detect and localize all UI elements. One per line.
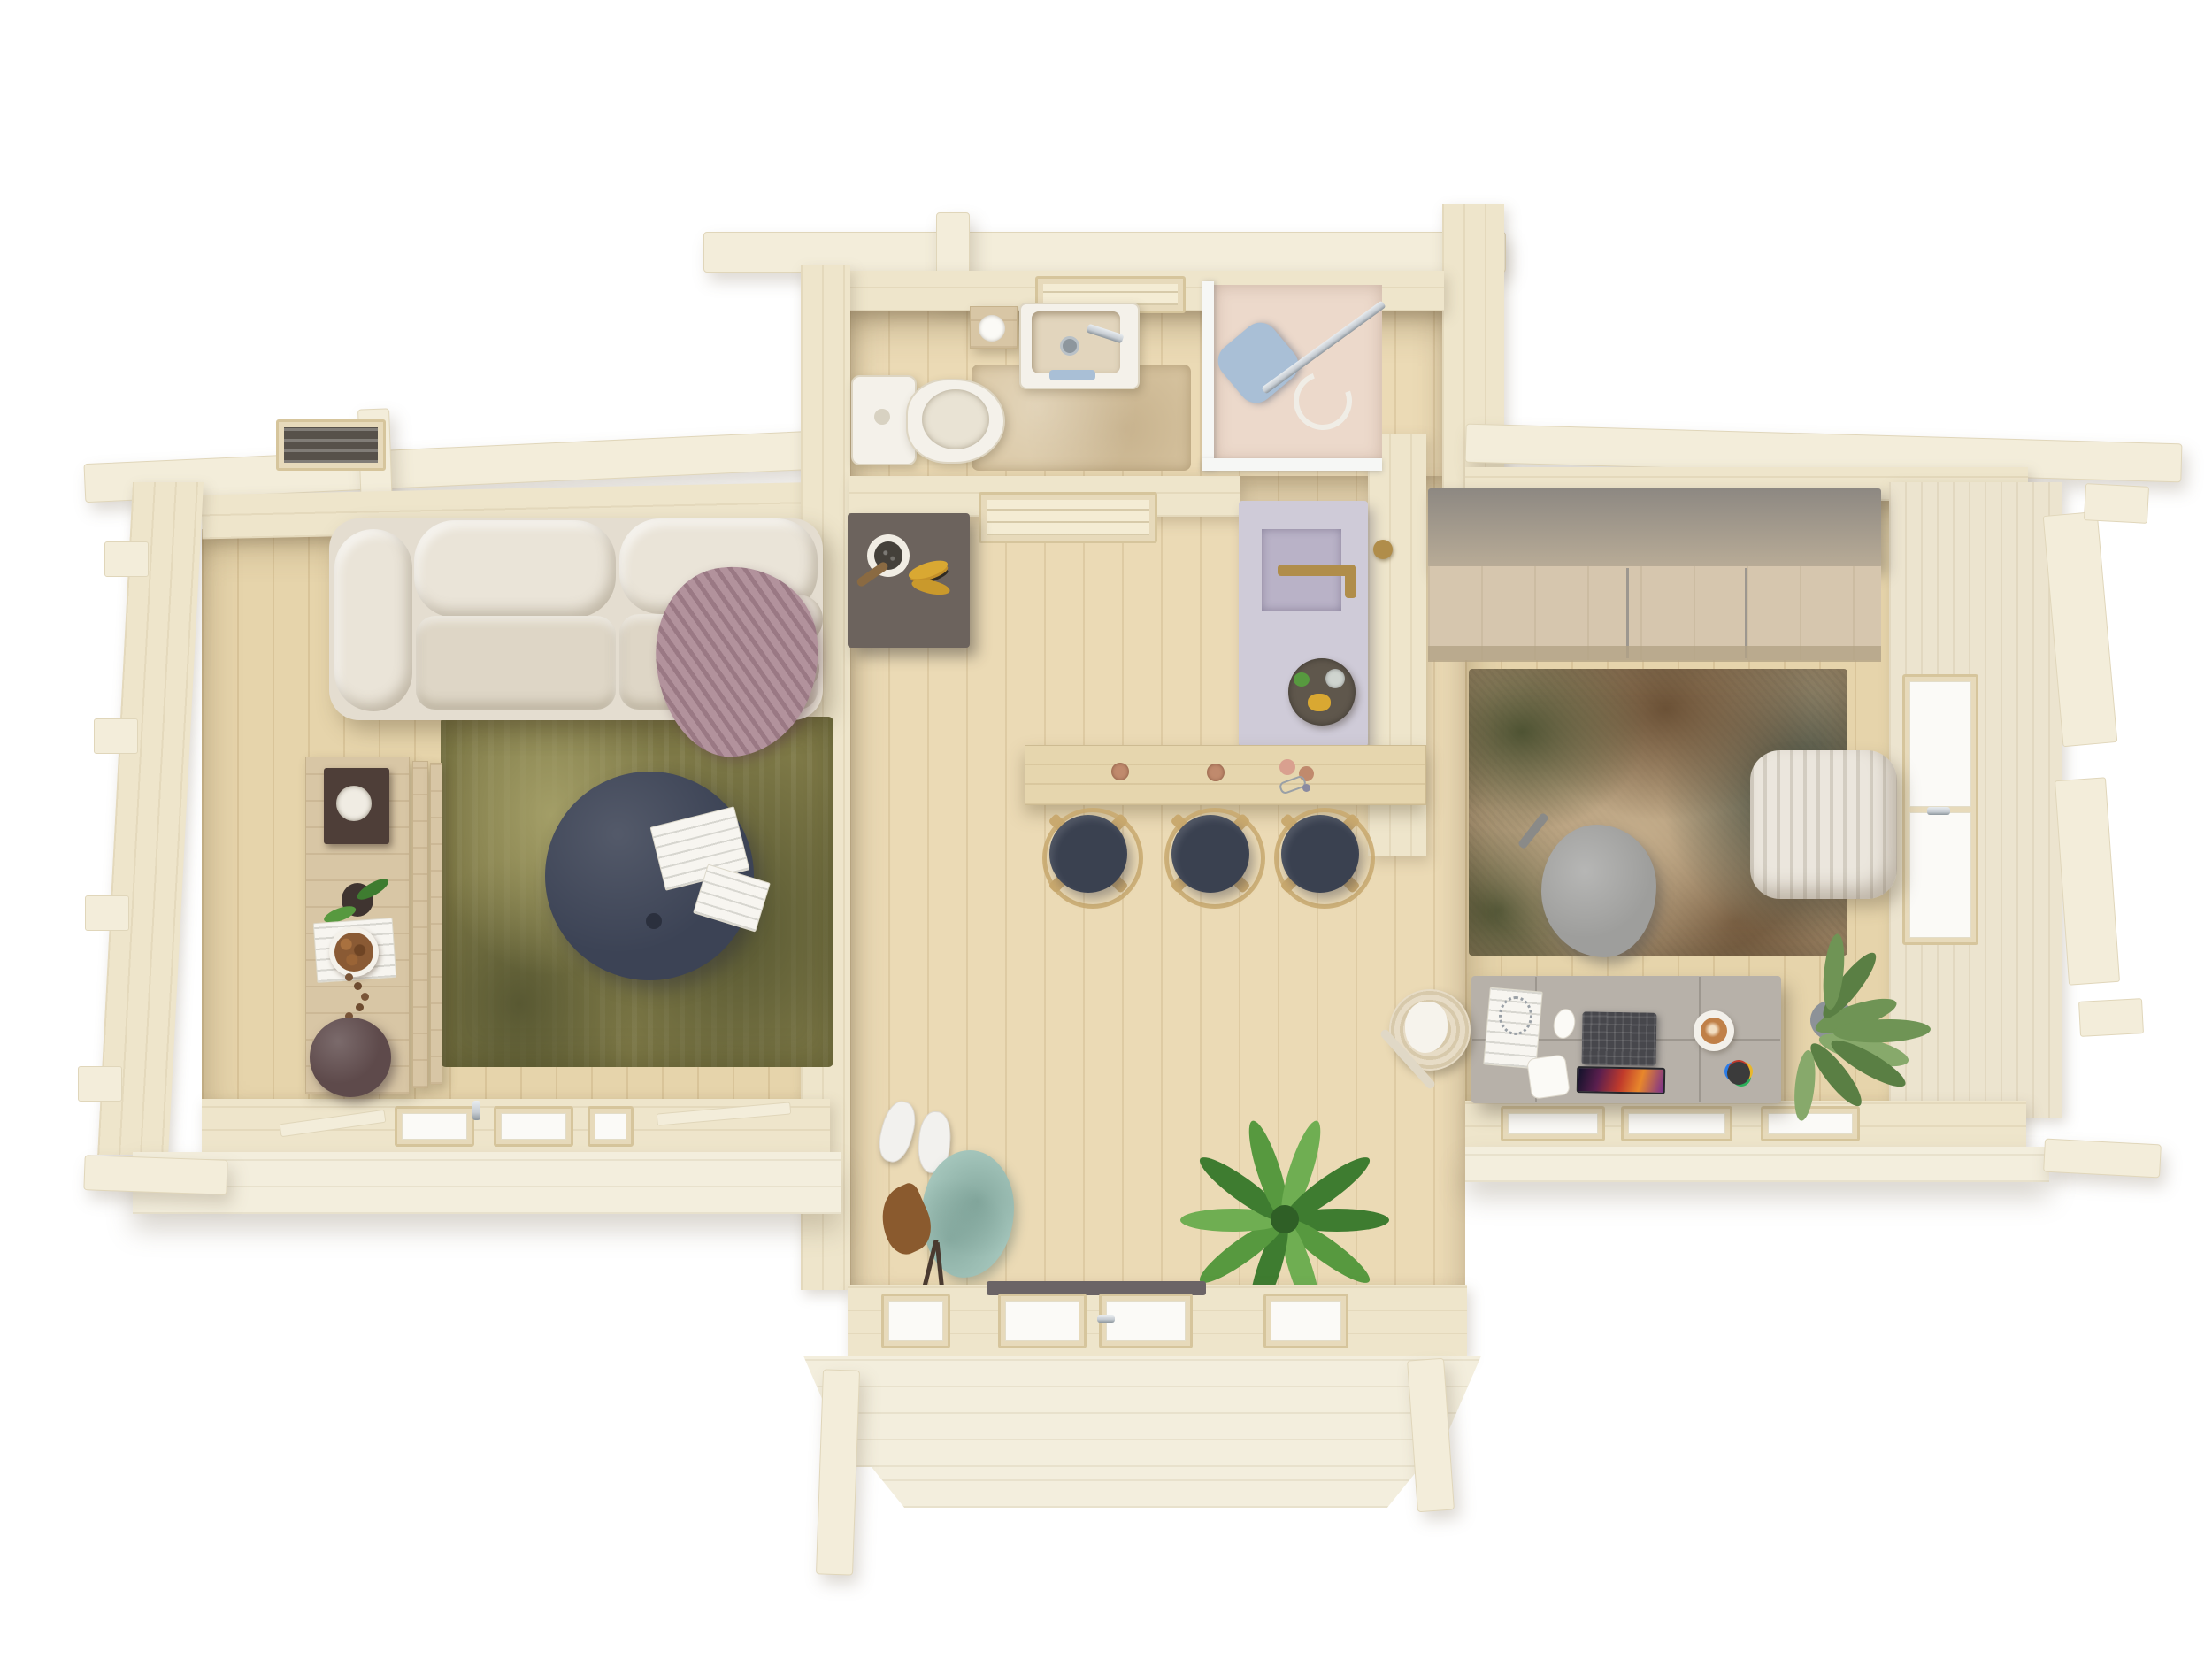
- front-window: [881, 1294, 950, 1348]
- door-handle-bar: [1278, 565, 1356, 576]
- toilet-flush-button: [874, 409, 890, 425]
- living-room-window: [588, 1106, 634, 1147]
- wall-bench-slat: [430, 763, 442, 1085]
- log-end-tab: [2084, 483, 2149, 524]
- office-window: [1621, 1106, 1732, 1141]
- entry-porch: [796, 1356, 1488, 1467]
- terrace-beam-stub: [83, 1155, 227, 1195]
- power-adapter: [1526, 1054, 1571, 1100]
- sofa-armrest: [334, 529, 412, 711]
- stool-seat: [1049, 815, 1127, 893]
- serving-tray: [1288, 658, 1356, 726]
- bead: [345, 973, 353, 981]
- front-window: [1263, 1294, 1348, 1348]
- lounge-chair: [1541, 825, 1656, 957]
- bar-counter: [1025, 745, 1426, 805]
- living-room-window: [494, 1106, 573, 1147]
- bead: [361, 993, 369, 1001]
- living-room-terrace: [133, 1152, 841, 1214]
- tray-snack: [1308, 694, 1331, 711]
- office-window: [1501, 1106, 1605, 1141]
- tray-glass: [1325, 669, 1345, 688]
- front-door-glass: [998, 1294, 1087, 1348]
- hall-skylight: [979, 492, 1157, 543]
- rose-cup: [1279, 759, 1295, 775]
- sofa-seat-cushion: [416, 616, 616, 710]
- pen-cup: [1727, 1062, 1750, 1085]
- door-knob: [1373, 540, 1393, 559]
- palm-center: [1271, 1205, 1299, 1233]
- wardrobe-shelf-shadow: [1428, 646, 1881, 662]
- door-handle-bar: [1345, 566, 1356, 598]
- sofa-back-cushion: [414, 520, 616, 618]
- bar-stool: [1157, 801, 1263, 907]
- living-room-skylight: [276, 419, 386, 471]
- bead: [356, 1003, 364, 1011]
- table-decor: [646, 913, 662, 929]
- snack-bowl-nuts: [334, 933, 373, 972]
- office-window: [1761, 1106, 1860, 1141]
- log-end-tab: [78, 1066, 122, 1102]
- ribbed-pouf: [1750, 750, 1897, 899]
- log-end-tab: [94, 718, 138, 754]
- toilet-seat: [922, 389, 989, 449]
- small-ball: [1302, 784, 1310, 792]
- living-room-window: [395, 1106, 474, 1147]
- toilet-paper-roll: [979, 315, 1005, 342]
- office-terrace: [1465, 1147, 2049, 1182]
- basin-drain: [1060, 336, 1079, 356]
- log-end-tab: [2078, 998, 2144, 1037]
- wardrobe-top: [1428, 488, 1881, 568]
- living-room-left-wall: [97, 482, 204, 1155]
- wardrobe-divider: [1745, 568, 1747, 658]
- cabinet-handle: [1049, 370, 1095, 380]
- stool-seat: [1281, 815, 1359, 893]
- bar-stool: [1267, 801, 1373, 907]
- window-latch: [1927, 807, 1950, 815]
- porch-post: [816, 1369, 860, 1575]
- wall-bench-slat: [412, 761, 428, 1088]
- bar-stool: [1035, 801, 1141, 907]
- entry-porch-step: [872, 1467, 1420, 1508]
- wardrobe-divider: [1626, 568, 1629, 658]
- tray-plant-sprig: [1294, 672, 1310, 687]
- necklace-loop: [1499, 996, 1532, 1035]
- floor-plan-render: [0, 0, 2212, 1659]
- bead: [354, 982, 362, 990]
- stool-seat: [1171, 815, 1249, 893]
- shower-glass-wall: [1202, 281, 1214, 471]
- laptop-screen: [1577, 1066, 1666, 1094]
- window-handle: [472, 1101, 480, 1120]
- log-end-tab: [104, 541, 149, 577]
- front-door-handle: [1097, 1315, 1115, 1323]
- copper-cup: [1111, 763, 1129, 780]
- coffee-cup: [1701, 1018, 1727, 1044]
- log-end-board: [2055, 777, 2120, 985]
- log-end-tab: [85, 895, 129, 931]
- shower-glass-wall: [1202, 458, 1382, 471]
- floor-pouf: [310, 1018, 391, 1097]
- laptop-keyboard: [1581, 1011, 1656, 1065]
- copper-cup: [1207, 764, 1225, 781]
- terrace-beam-stub: [2043, 1139, 2162, 1179]
- book-cover-plate: [336, 786, 372, 821]
